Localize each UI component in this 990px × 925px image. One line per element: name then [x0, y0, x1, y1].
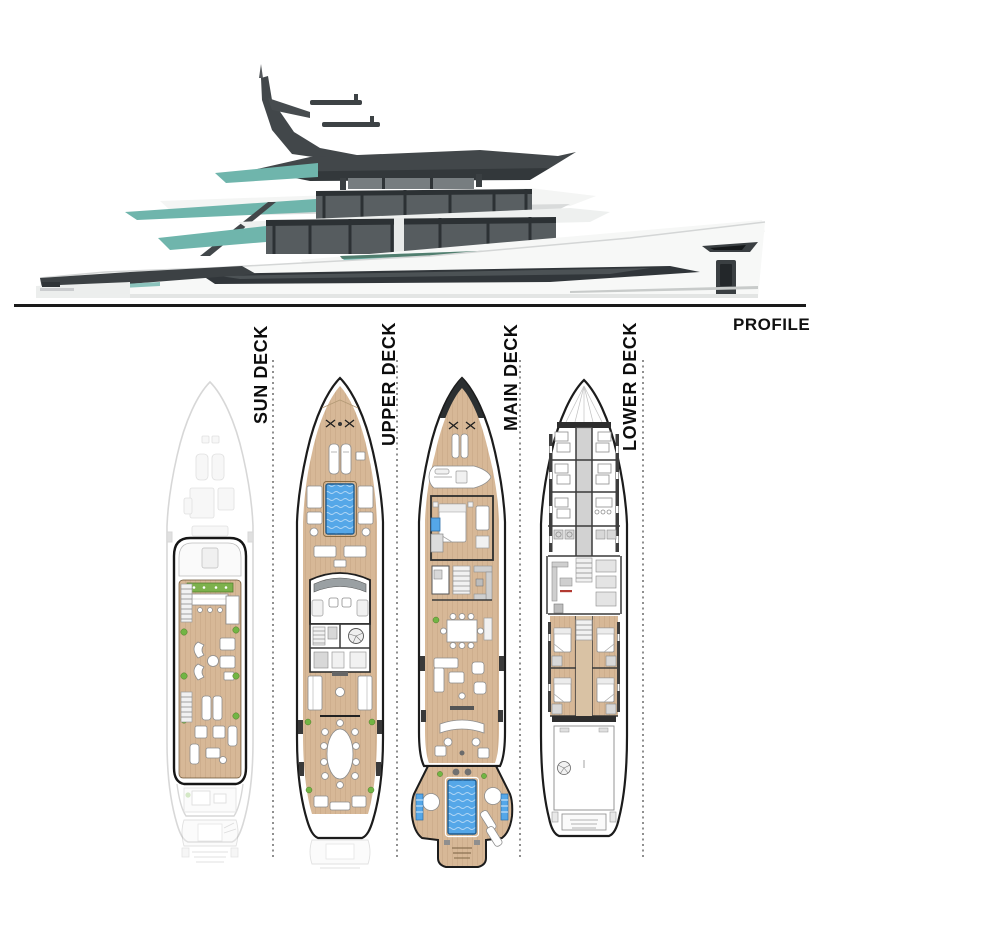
profile-label: PROFILE: [733, 315, 809, 335]
sun-deck-plan: [150, 370, 270, 875]
upper-deck-plan: [280, 370, 400, 875]
ground-line: [14, 304, 806, 307]
ruler-sun-deck: [272, 360, 274, 858]
lower-deck-plan: [524, 370, 644, 875]
main-deck-plan: [402, 370, 522, 880]
yacht-profile-rendering: [10, 60, 810, 310]
yacht-ga-sheet: PROFILE SUN DECK UPPER DECK MAIN DECK LO…: [0, 0, 990, 925]
sun-deck-solid: [174, 538, 246, 784]
mast: [259, 64, 380, 158]
sundeck-hardtop: [215, 150, 576, 190]
